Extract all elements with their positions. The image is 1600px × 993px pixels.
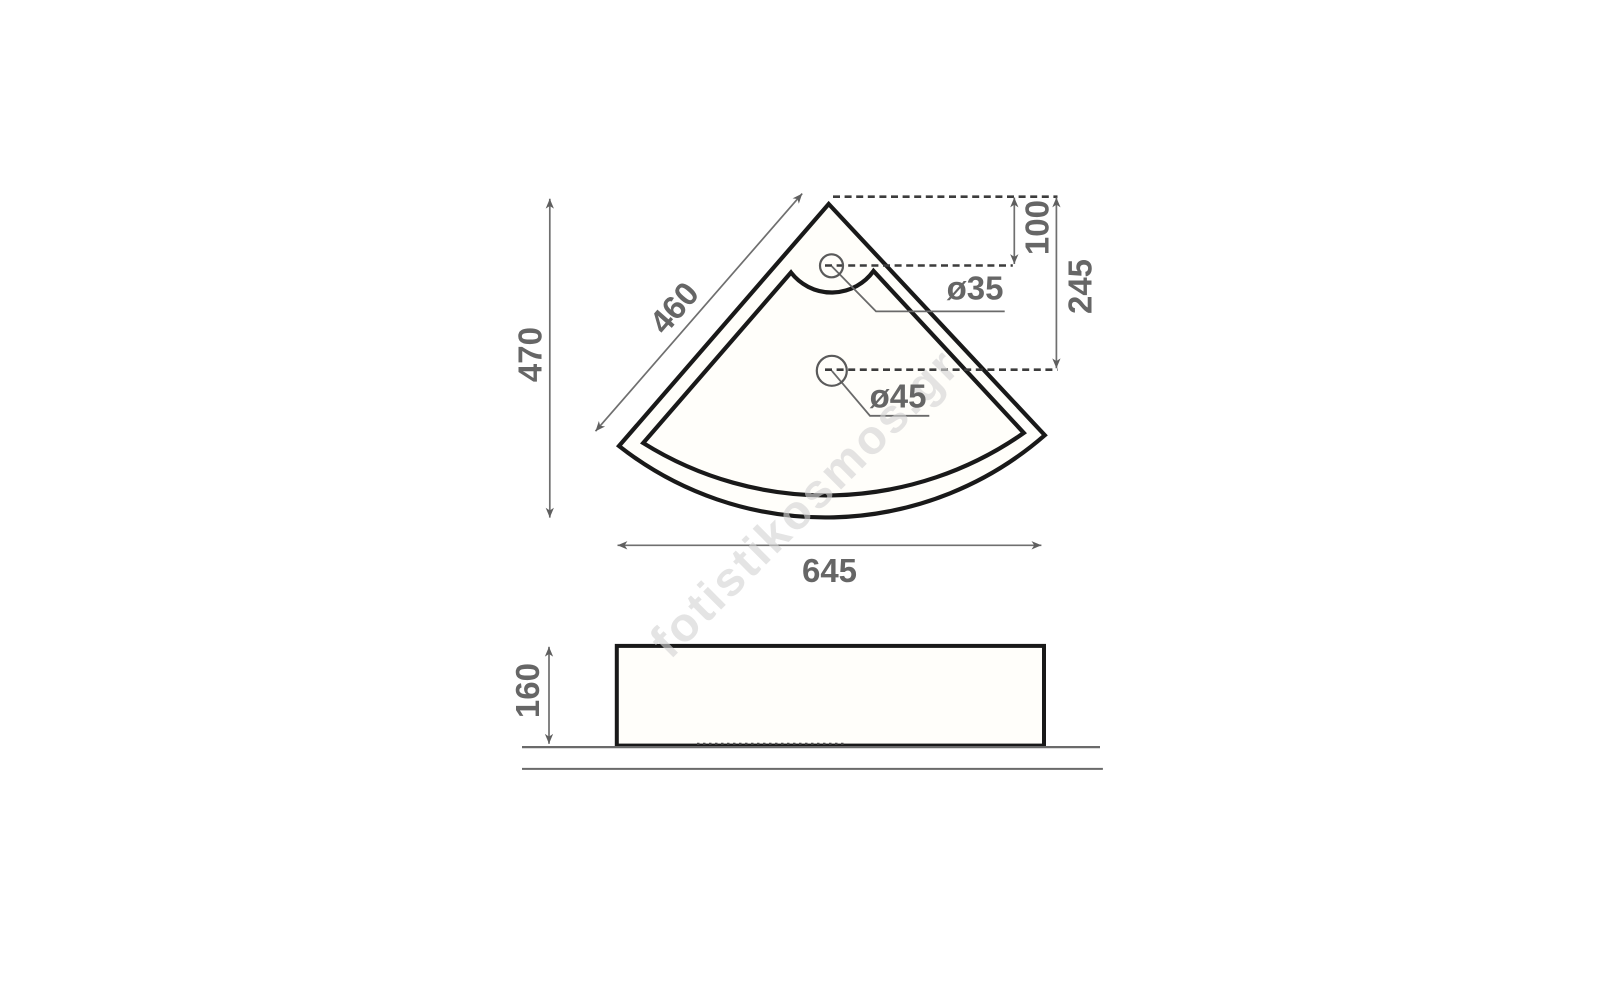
svg-text:100: 100 bbox=[1019, 200, 1056, 255]
svg-text:470: 470 bbox=[511, 327, 548, 382]
svg-text:245: 245 bbox=[1062, 259, 1099, 314]
svg-text:ø35: ø35 bbox=[947, 270, 1004, 307]
svg-text:160: 160 bbox=[509, 663, 546, 718]
svg-text:645: 645 bbox=[802, 552, 857, 589]
svg-text:ø45: ø45 bbox=[870, 378, 927, 415]
